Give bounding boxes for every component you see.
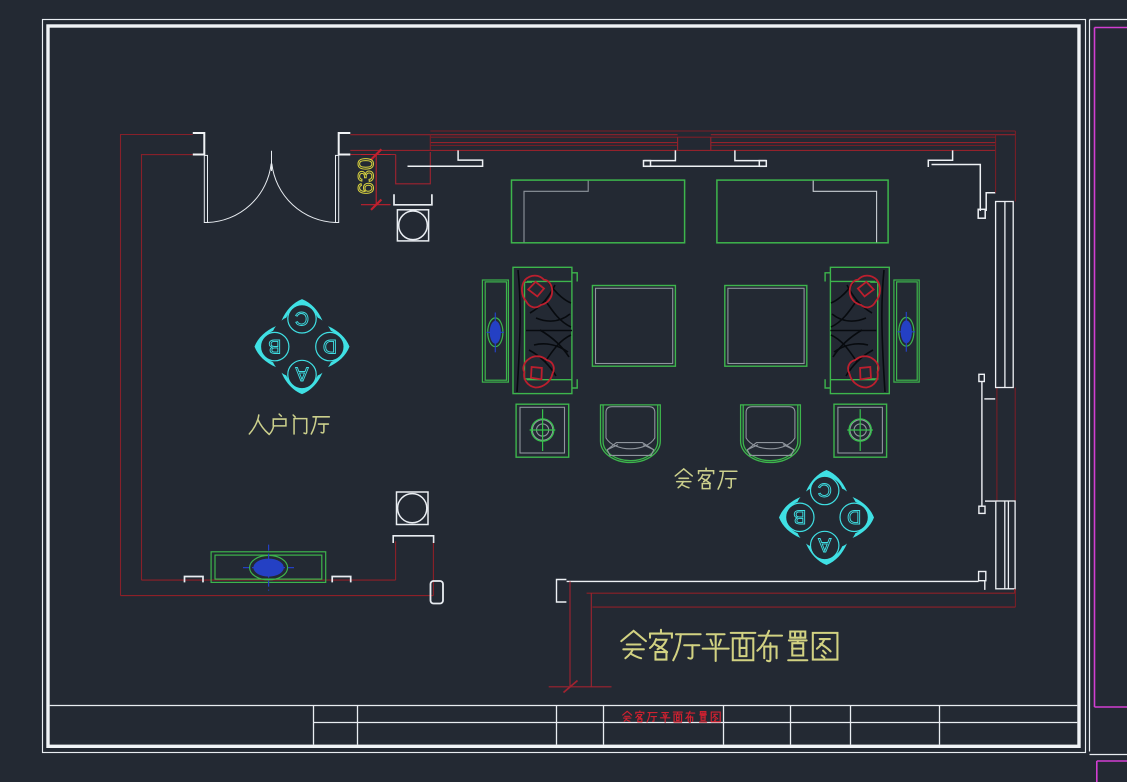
svg-text:C: C — [818, 479, 832, 501]
svg-text:A: A — [818, 534, 831, 556]
svg-text:C: C — [295, 307, 309, 329]
svg-text:B: B — [793, 506, 806, 528]
svg-text:630: 630 — [354, 158, 379, 195]
svg-text:A: A — [295, 363, 308, 385]
svg-text:B: B — [268, 335, 281, 357]
svg-text:D: D — [847, 506, 861, 528]
svg-text:D: D — [323, 335, 337, 357]
